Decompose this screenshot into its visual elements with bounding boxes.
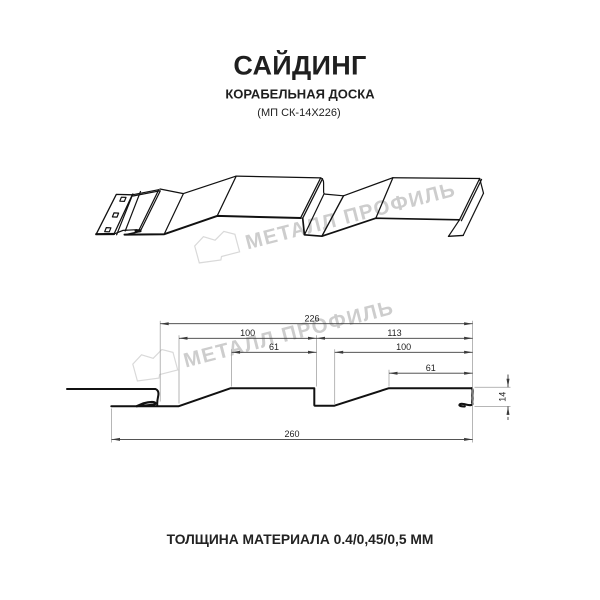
svg-text:14: 14 [498, 392, 508, 402]
svg-text:КОРАБЕЛЬНАЯ ДОСКА: КОРАБЕЛЬНАЯ ДОСКА [225, 86, 375, 101]
svg-text:113: 113 [387, 328, 401, 338]
svg-text:100: 100 [240, 328, 255, 338]
svg-text:(МП СК-14Х226): (МП СК-14Х226) [257, 107, 340, 119]
svg-text:260: 260 [284, 429, 299, 439]
svg-text:226: 226 [304, 313, 319, 323]
svg-text:100: 100 [396, 342, 411, 352]
svg-text:61: 61 [426, 363, 436, 373]
svg-text:САЙДИНГ: САЙДИНГ [233, 50, 366, 81]
svg-text:61: 61 [269, 342, 279, 352]
svg-text:ТОЛЩИНА МАТЕРИАЛА 0.4/0,45/0,5: ТОЛЩИНА МАТЕРИАЛА 0.4/0,45/0,5 ММ [167, 532, 434, 547]
